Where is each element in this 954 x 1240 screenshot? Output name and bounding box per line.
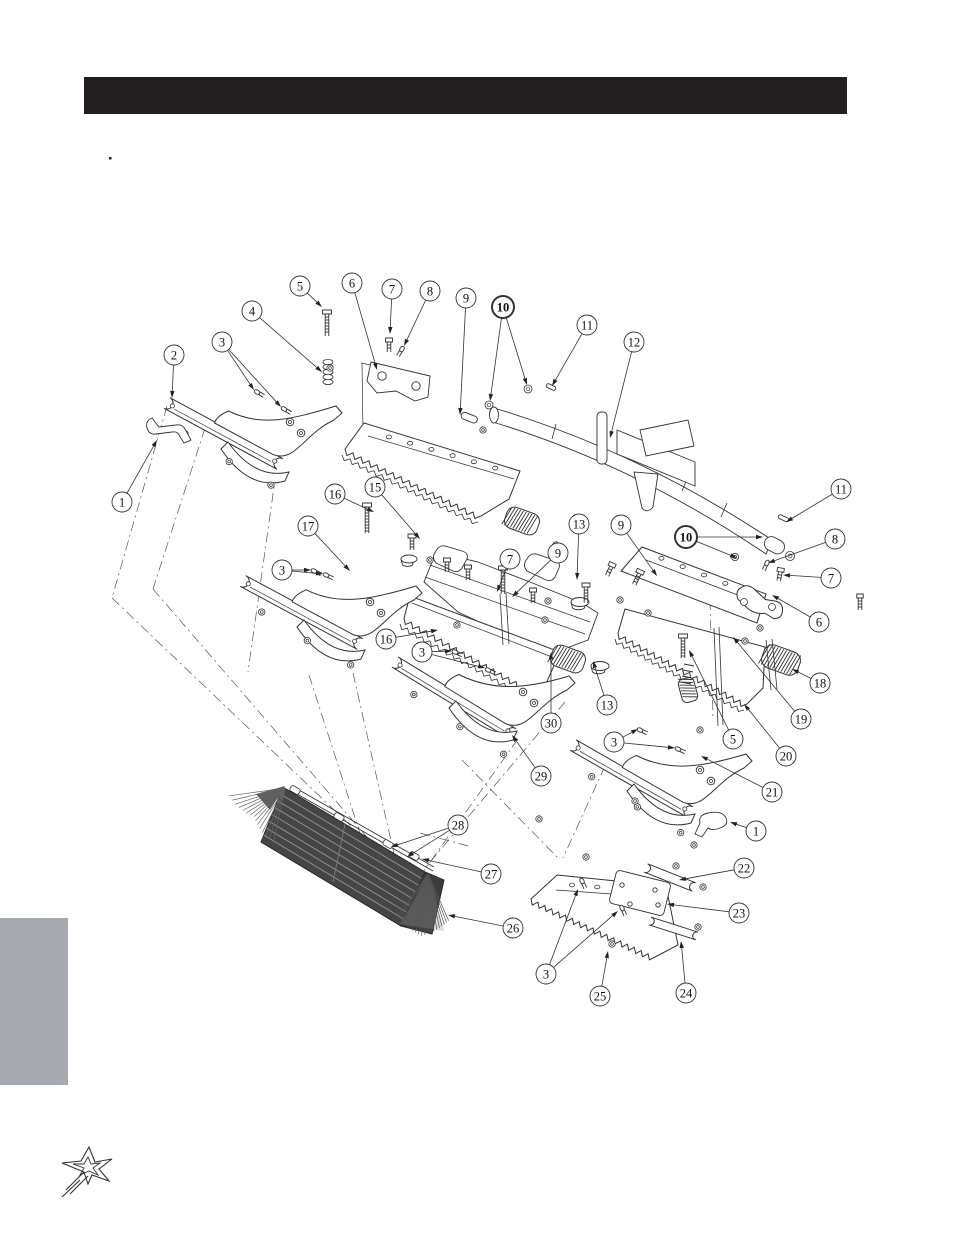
- svg-text:3: 3: [279, 563, 285, 577]
- svg-text:20: 20: [780, 749, 793, 763]
- svg-text:23: 23: [733, 906, 746, 920]
- svg-text:13: 13: [601, 698, 614, 712]
- svg-text:15: 15: [369, 480, 382, 494]
- svg-text:27: 27: [485, 867, 498, 881]
- svg-text:28: 28: [452, 818, 465, 832]
- svg-text:16: 16: [329, 487, 342, 501]
- svg-text:4: 4: [249, 304, 256, 318]
- svg-text:13: 13: [573, 517, 586, 531]
- svg-text:21: 21: [766, 785, 779, 799]
- svg-text:29: 29: [535, 769, 548, 783]
- svg-text:11: 11: [835, 482, 847, 496]
- svg-text:3: 3: [611, 735, 617, 749]
- svg-text:9: 9: [463, 291, 469, 305]
- svg-text:9: 9: [555, 546, 561, 560]
- svg-text:7: 7: [507, 552, 513, 566]
- svg-text:3: 3: [419, 645, 425, 659]
- svg-text:5: 5: [297, 279, 303, 293]
- svg-text:9: 9: [618, 518, 624, 532]
- svg-text:3: 3: [219, 335, 225, 349]
- svg-text:8: 8: [832, 532, 838, 546]
- svg-text:19: 19: [795, 712, 808, 726]
- svg-text:10: 10: [497, 300, 510, 314]
- svg-text:18: 18: [814, 676, 827, 690]
- svg-text:25: 25: [594, 989, 607, 1003]
- svg-text:10: 10: [680, 530, 693, 544]
- svg-text:1: 1: [119, 495, 125, 509]
- svg-text:16: 16: [380, 632, 393, 646]
- svg-text:1: 1: [753, 824, 759, 838]
- svg-text:7: 7: [389, 282, 395, 296]
- svg-text:17: 17: [302, 519, 315, 533]
- svg-text:6: 6: [816, 615, 822, 629]
- svg-text:24: 24: [680, 986, 693, 1000]
- svg-text:6: 6: [349, 276, 355, 290]
- svg-text:11: 11: [581, 318, 593, 332]
- svg-text:7: 7: [828, 571, 834, 585]
- svg-text:8: 8: [427, 284, 433, 298]
- svg-text:12: 12: [628, 335, 641, 349]
- svg-text:5: 5: [730, 732, 736, 746]
- svg-text:3: 3: [543, 967, 549, 981]
- svg-text:26: 26: [507, 921, 520, 935]
- svg-text:30: 30: [545, 716, 558, 730]
- svg-text:2: 2: [171, 348, 177, 362]
- svg-text:22: 22: [738, 861, 751, 875]
